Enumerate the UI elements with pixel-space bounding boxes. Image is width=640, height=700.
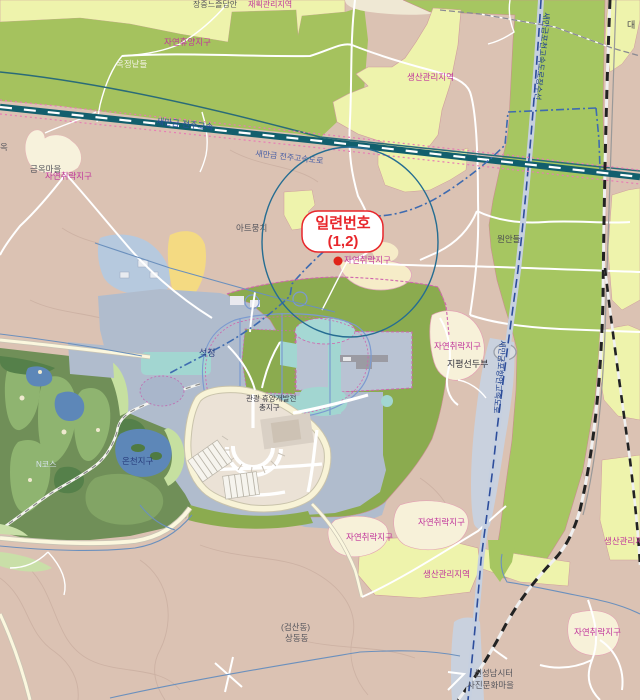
svg-text:일련번호: 일련번호 [315, 214, 370, 232]
svg-text:자연취락지구: 자연취락지구 [45, 171, 92, 181]
svg-text:옥정낱들: 옥정낱들 [116, 59, 147, 69]
svg-text:원안들: 원안들 [497, 234, 521, 244]
svg-text:자연취락지구: 자연취락지구 [346, 532, 393, 542]
svg-text:자연취락지구: 자연취락지구 [434, 341, 481, 351]
svg-text:재획관리지역: 재획관리지역 [248, 0, 292, 9]
svg-text:자연취락지구: 자연취락지구 [344, 255, 391, 265]
svg-text:(1,2): (1,2) [328, 233, 359, 250]
svg-text:대: 대 [627, 20, 635, 30]
svg-text:장중느즐답안: 장중느즐답안 [193, 0, 238, 9]
svg-text:신성남시터: 신성남시터 [474, 668, 513, 678]
svg-text:온천지구: 온천지구 [122, 456, 153, 466]
svg-text:석정: 석정 [199, 348, 216, 358]
svg-text:N코스: N코스 [36, 460, 57, 469]
svg-text:총지구: 총지구 [259, 403, 280, 412]
svg-text:생산관리지역: 생산관리지역 [407, 72, 454, 82]
svg-text:생산관리지역: 생산관리지역 [423, 569, 470, 579]
svg-text:옥: 옥 [0, 142, 8, 152]
svg-text:자연휴양지구: 자연휴양지구 [164, 37, 211, 47]
svg-text:상동동: 상동동 [285, 633, 309, 643]
svg-text:사진문화마을: 사진문화마을 [467, 680, 514, 690]
svg-text:자연취락지구: 자연취락지구 [574, 627, 621, 637]
svg-text:(검산동): (검산동) [281, 622, 310, 632]
svg-text:관광 휴양개발전: 관광 휴양개발전 [246, 393, 296, 403]
svg-text:지평선두부: 지평선두부 [447, 359, 488, 369]
svg-text:자연취락지구: 자연취락지구 [418, 517, 465, 527]
svg-text:생산관리지역: 생산관리지역 [604, 536, 640, 546]
